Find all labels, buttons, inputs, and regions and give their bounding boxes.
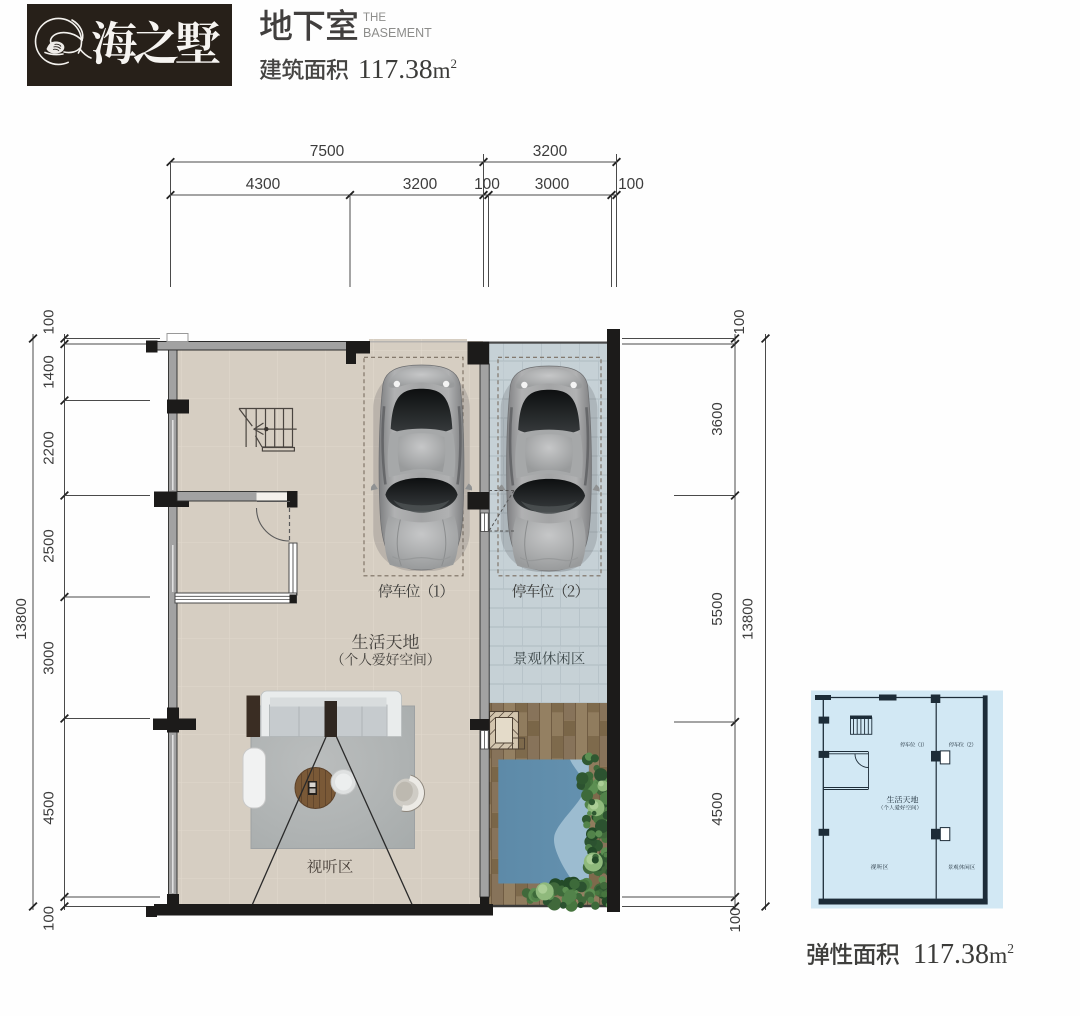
svg-text:4300: 4300 bbox=[246, 176, 281, 193]
svg-text:5500: 5500 bbox=[709, 592, 726, 625]
svg-text:3200: 3200 bbox=[403, 176, 438, 193]
svg-text:2200: 2200 bbox=[41, 431, 58, 464]
svg-text:3000: 3000 bbox=[535, 176, 570, 193]
svg-text:100: 100 bbox=[41, 906, 58, 931]
svg-text:117.38m2: 117.38m2 bbox=[358, 53, 457, 84]
svg-text:BASEMENT: BASEMENT bbox=[363, 26, 432, 40]
svg-text:117.38m2: 117.38m2 bbox=[913, 939, 1014, 970]
svg-text:3600: 3600 bbox=[709, 402, 726, 435]
svg-text:100: 100 bbox=[618, 176, 644, 193]
svg-text:100: 100 bbox=[41, 309, 58, 334]
svg-text:3000: 3000 bbox=[41, 641, 58, 674]
svg-text:100: 100 bbox=[727, 907, 744, 932]
svg-text:7500: 7500 bbox=[310, 143, 345, 160]
svg-text:4500: 4500 bbox=[709, 792, 726, 825]
svg-text:THE: THE bbox=[363, 12, 386, 24]
svg-text:4500: 4500 bbox=[41, 791, 58, 824]
svg-text:1400: 1400 bbox=[41, 355, 58, 388]
svg-text:100: 100 bbox=[474, 176, 500, 193]
svg-text:13800: 13800 bbox=[740, 598, 757, 640]
svg-text:3200: 3200 bbox=[533, 143, 568, 160]
svg-text:100: 100 bbox=[731, 309, 748, 334]
svg-text:2500: 2500 bbox=[41, 529, 58, 562]
svg-text:13800: 13800 bbox=[13, 598, 30, 640]
